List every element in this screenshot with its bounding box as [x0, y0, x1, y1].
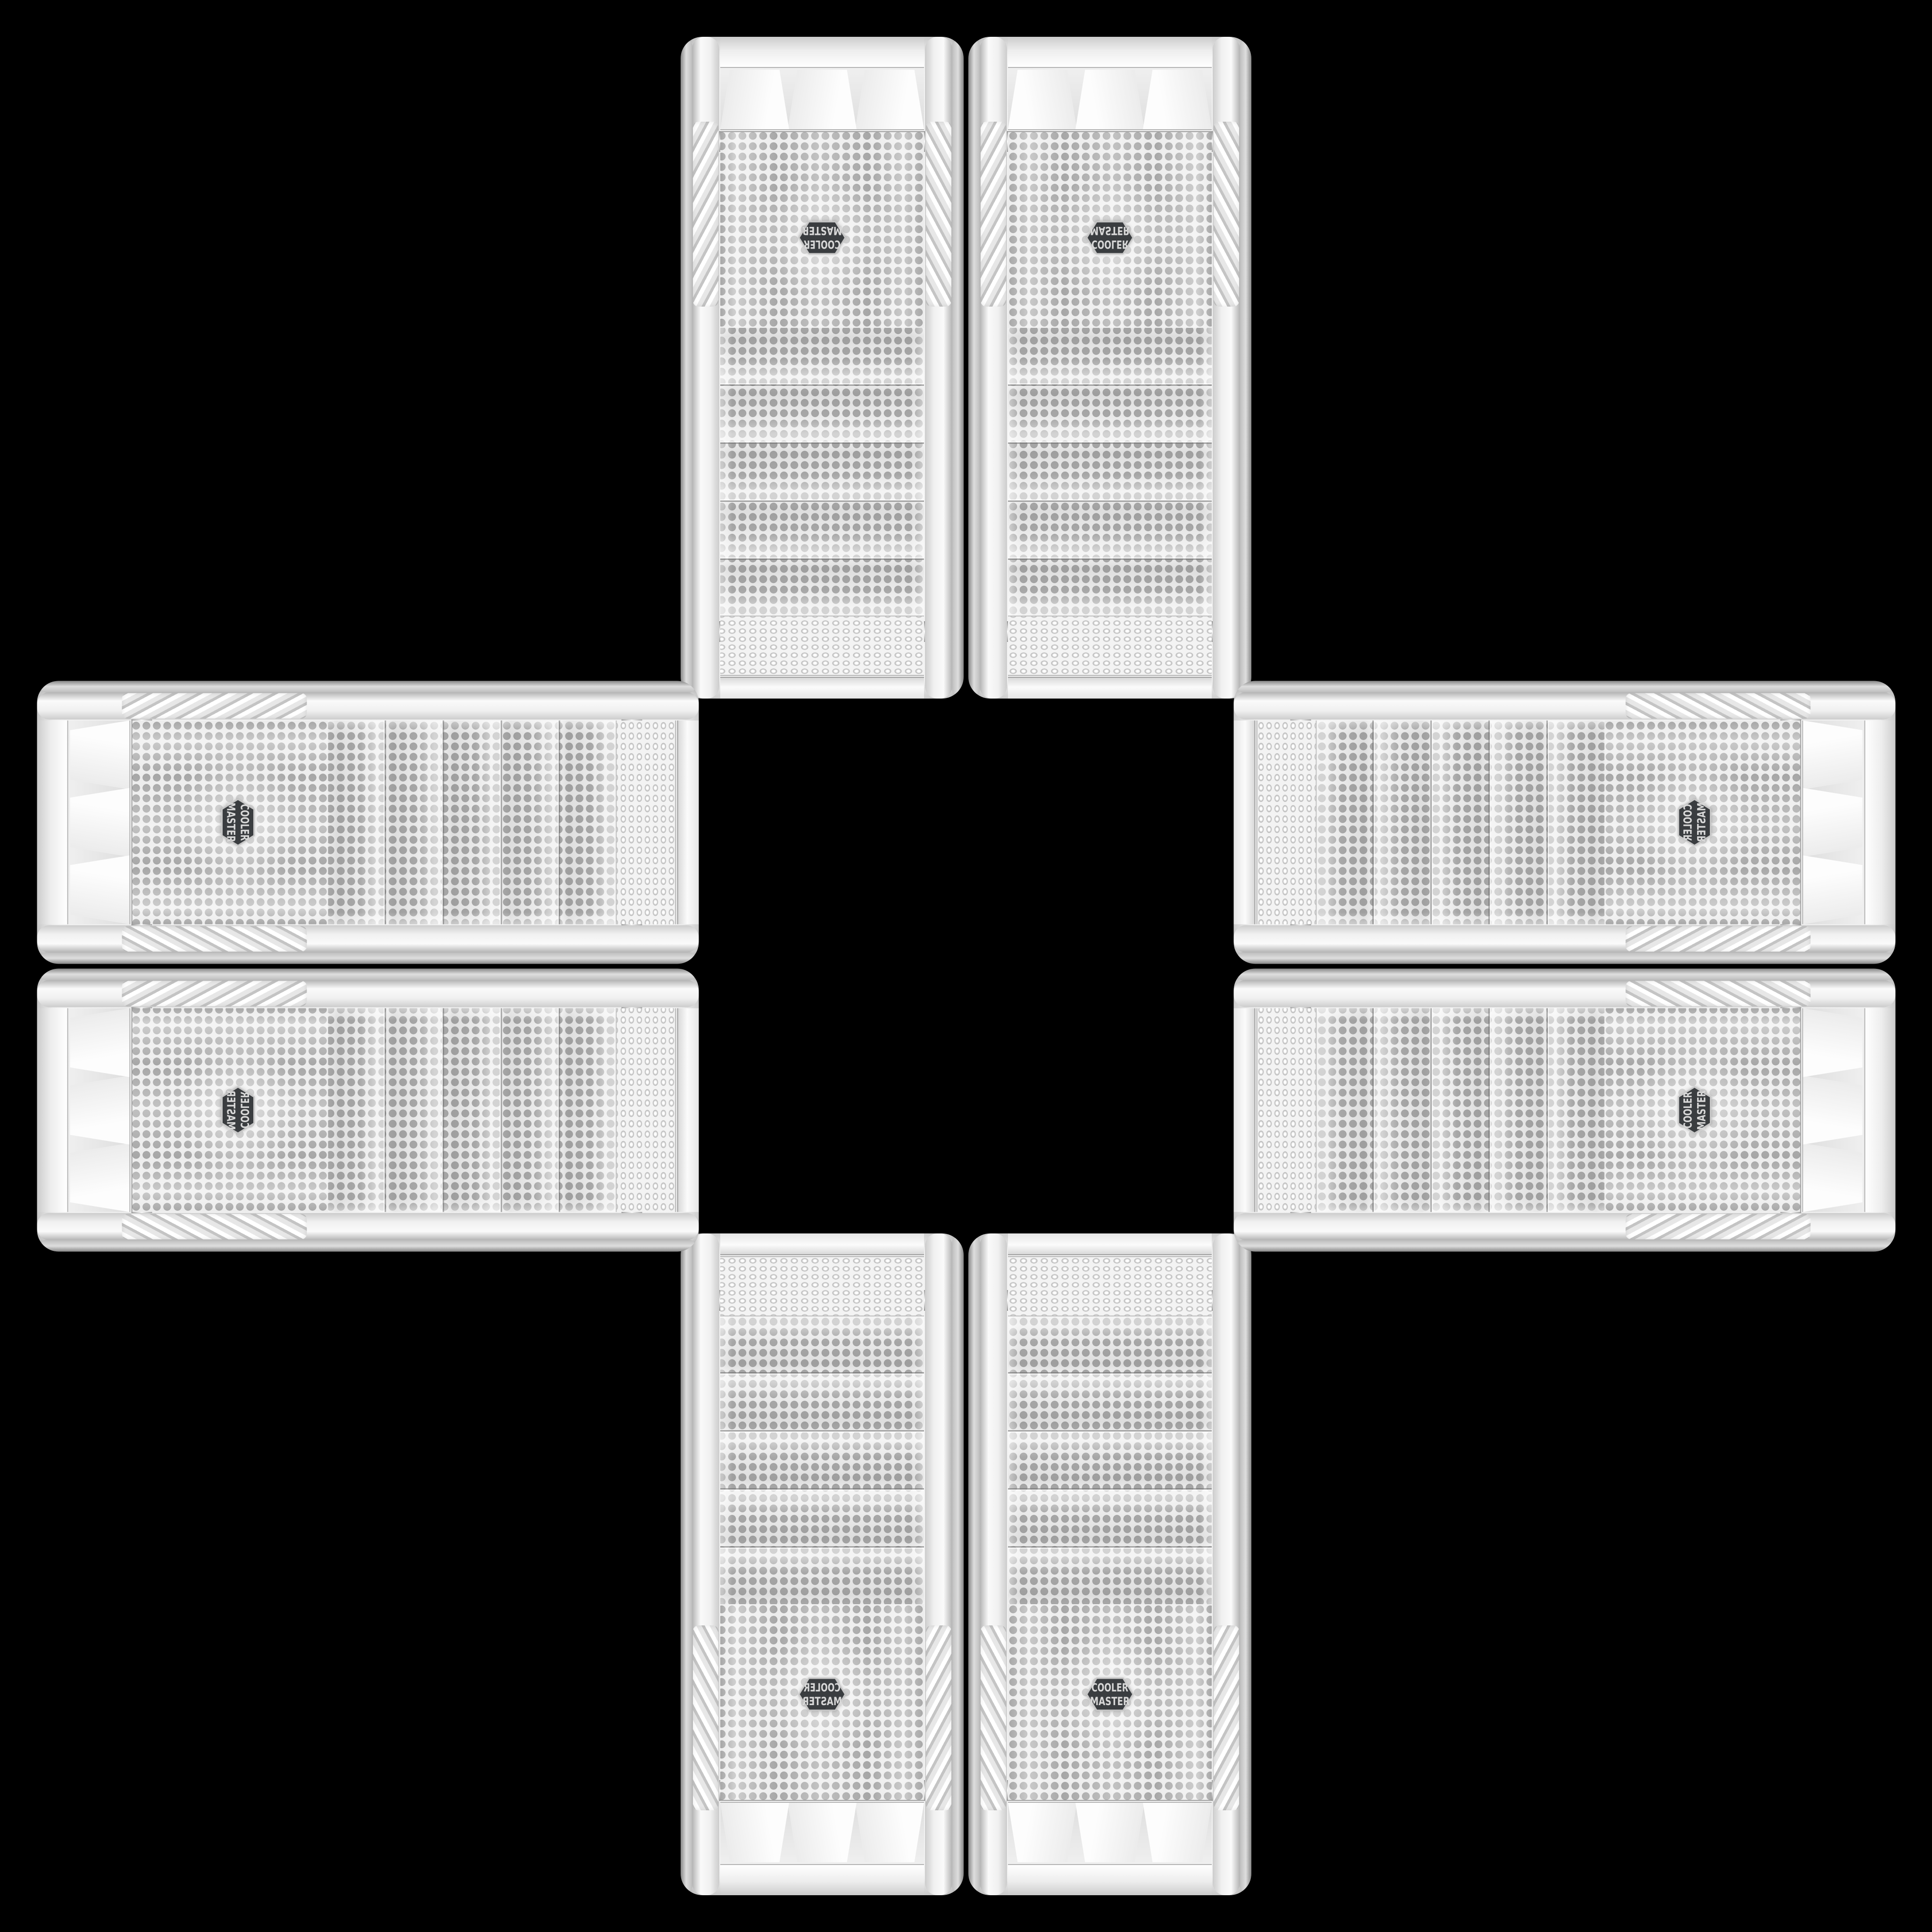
side-panel-edge-right [41, 952, 695, 964]
side-rail-left [980, 1233, 1007, 1895]
cap-facet [70, 856, 130, 924]
cap-base [1865, 1008, 1896, 1212]
drive-bay-covers [1317, 1008, 1605, 1212]
cap-facet [720, 1803, 789, 1862]
side-panel-edge-left [952, 41, 963, 695]
grip-ridges [693, 1625, 718, 1810]
cap-facet [1803, 721, 1863, 790]
bottom-cap [1803, 1008, 1896, 1212]
cap-facet [855, 1803, 924, 1862]
scene: COOLER MASTER [0, 0, 1932, 1932]
side-panel-edge-right [681, 41, 692, 695]
drive-bay-covers [1008, 328, 1212, 616]
chrome-trim-top [675, 1008, 678, 1212]
side-rail-left [925, 1233, 952, 1895]
case-slot-left-top: COOLER MASTER [37, 681, 699, 964]
cap-facet-row [1008, 69, 1212, 129]
cooler-master-logo: COOLER MASTER [1085, 1676, 1134, 1713]
side-rail-right [692, 1233, 719, 1895]
drive-bay-covers [328, 721, 616, 924]
cap-facet [1008, 70, 1077, 129]
cap-facet-row [720, 69, 924, 129]
side-panel-edge-right [1240, 1237, 1251, 1891]
badge-text-master: MASTER [225, 803, 238, 842]
badge-text-master: MASTER [1090, 224, 1130, 237]
pc-case-front-panel: COOLER MASTER [37, 681, 699, 964]
pc-case-front-panel: COOLER MASTER [1234, 681, 1896, 964]
badge-text-cooler: COOLER [1091, 238, 1128, 251]
badge-text-master: MASTER [802, 1695, 842, 1708]
cap-facet [788, 70, 857, 129]
grip-ridges [1626, 981, 1811, 1007]
top-lip [1008, 678, 1212, 699]
grip-ridges [122, 1214, 307, 1240]
top-lip [720, 678, 924, 699]
cooler-master-badge-shape: COOLER MASTER [1676, 1086, 1713, 1135]
grip-ridges [981, 1625, 1006, 1810]
badge-text-cooler: COOLER [238, 1092, 251, 1129]
pc-case-front-panel: COOLER MASTER [37, 969, 699, 1252]
mesh-roll-edge [720, 616, 924, 675]
side-rail-right [1234, 980, 1896, 1008]
cap-base [720, 37, 924, 67]
cap-base [37, 721, 67, 924]
cooler-master-badge-shape: COOLER MASTER [798, 219, 847, 256]
side-panel-edge-right [681, 1237, 692, 1891]
top-lip [678, 1008, 699, 1212]
cooler-master-badge-shape: COOLER MASTER [220, 798, 257, 847]
cap-facet [70, 721, 130, 790]
side-panel-edge-left [969, 1237, 980, 1891]
cap-facet [70, 788, 130, 857]
grip-ridges [981, 122, 1006, 307]
side-panel-edge-left [1238, 1240, 1892, 1251]
grip-ridges [122, 693, 307, 719]
grip-ridges [122, 981, 307, 1007]
side-panel-edge-right [1238, 952, 1892, 964]
case-slot-right-bottom: COOLER MASTER [1234, 969, 1896, 1252]
chrome-trim-bottom [130, 721, 133, 924]
grip-ridges [1214, 1625, 1239, 1810]
cap-facet-row [1803, 1008, 1864, 1212]
cooler-master-logo: COOLER MASTER [220, 798, 257, 847]
badge-text-master: MASTER [1695, 803, 1708, 842]
cap-facet-row [1008, 1803, 1212, 1863]
cooler-master-logo: COOLER MASTER [798, 219, 847, 256]
bottom-cap [720, 37, 924, 129]
side-panel-edge-right [1238, 969, 1892, 981]
side-panel-edge-left [952, 1237, 963, 1891]
bottom-cap [720, 1803, 924, 1895]
case-slot-right-top: COOLER MASTER [1234, 681, 1896, 964]
top-lip [720, 1233, 924, 1254]
drive-bay-covers [328, 1008, 616, 1212]
top-lip [1234, 1008, 1255, 1212]
mesh-roll-edge [616, 1008, 675, 1212]
side-rail-left [980, 37, 1007, 699]
cooler-master-badge-shape: COOLER MASTER [220, 1086, 257, 1135]
bottom-cap [1008, 1803, 1212, 1895]
cap-facet [1803, 856, 1863, 924]
side-panel-edge-left [969, 41, 980, 695]
badge-text-master: MASTER [802, 224, 842, 237]
pc-case-front-panel: COOLER MASTER [968, 1233, 1251, 1895]
front-panel: COOLER MASTER [720, 37, 924, 699]
badge-text-master: MASTER [1090, 1695, 1130, 1708]
grip-ridges [1626, 1214, 1811, 1240]
grip-ridges [926, 1625, 951, 1810]
cap-facet-row [69, 1008, 130, 1212]
badge-text-master: MASTER [1695, 1091, 1708, 1130]
cap-facet [70, 1008, 130, 1077]
chrome-trim-bottom [720, 129, 924, 132]
side-rail-right [37, 925, 699, 953]
side-rail-left [1234, 692, 1896, 720]
pc-case-front-panel: COOLER MASTER [681, 1233, 964, 1895]
case-slot-bottom-right: COOLER MASTER [968, 1233, 1251, 1895]
badge-text-cooler: COOLER [238, 804, 251, 841]
grip-ridges [926, 122, 951, 307]
pc-case-front-panel: COOLER MASTER [1234, 969, 1896, 1252]
cap-facet [1803, 788, 1863, 857]
cap-facet [1143, 70, 1212, 129]
chrome-trim-bottom [130, 1008, 133, 1212]
front-panel: COOLER MASTER [37, 1008, 699, 1212]
cap-facet [1803, 1143, 1863, 1212]
front-panel: COOLER MASTER [1008, 1233, 1212, 1895]
side-panel-edge-right [41, 969, 695, 981]
grip-ridges [1626, 693, 1811, 719]
front-panel: COOLER MASTER [1008, 37, 1212, 699]
drive-bay-covers [1008, 1316, 1212, 1604]
cooler-master-badge-shape: COOLER MASTER [1085, 1676, 1134, 1713]
drive-bay-covers [720, 328, 924, 616]
case-slot-top-right: COOLER MASTER [968, 37, 1251, 699]
grip-ridges [1626, 926, 1811, 952]
top-lip [1008, 1233, 1212, 1254]
front-panel: COOLER MASTER [1234, 1008, 1896, 1212]
case-slot-top-left: COOLER MASTER [681, 37, 964, 699]
side-rail-right [1213, 37, 1240, 699]
chrome-trim-top [720, 675, 924, 678]
cooler-master-badge-shape: COOLER MASTER [1085, 219, 1134, 256]
mesh-roll-edge [1008, 1257, 1212, 1316]
mesh-roll-edge [616, 721, 675, 924]
bottom-cap [37, 721, 130, 924]
mesh-roll-edge [1257, 1008, 1317, 1212]
grip-ridges [693, 122, 718, 307]
front-panel: COOLER MASTER [37, 721, 699, 924]
cap-facet [720, 70, 789, 129]
grip-ridges [1214, 122, 1239, 307]
mesh-roll-edge [1257, 721, 1317, 924]
badge-text-cooler: COOLER [804, 1681, 841, 1694]
top-lip [1234, 721, 1255, 924]
case-slot-left-bottom: COOLER MASTER [37, 969, 699, 1252]
cap-base [720, 1865, 924, 1895]
side-rail-left [37, 1213, 699, 1241]
cooler-master-badge-shape: COOLER MASTER [1676, 798, 1713, 847]
badge-text-cooler: COOLER [804, 238, 841, 251]
cooler-master-badge-shape: COOLER MASTER [798, 1676, 847, 1713]
side-rail-left [925, 37, 952, 699]
cooler-master-logo: COOLER MASTER [1676, 1086, 1713, 1135]
front-panel: COOLER MASTER [720, 1233, 924, 1895]
cap-facet [788, 1803, 857, 1862]
chrome-trim-top [1008, 675, 1212, 678]
bottom-cap [1008, 37, 1212, 129]
badge-text-master: MASTER [225, 1091, 238, 1130]
side-rail-left [37, 692, 699, 720]
cap-base [1865, 721, 1896, 924]
cap-facet [1803, 1008, 1863, 1077]
bottom-cap [1803, 721, 1896, 924]
side-rail-right [1213, 1233, 1240, 1895]
bottom-cap [37, 1008, 130, 1212]
mesh-roll-edge [1008, 616, 1212, 675]
badge-text-cooler: COOLER [1682, 1092, 1695, 1129]
cap-facet [70, 1076, 130, 1145]
badge-text-cooler: COOLER [1091, 1681, 1128, 1694]
cap-facet [1008, 1803, 1077, 1862]
cap-base [37, 1008, 67, 1212]
front-panel: COOLER MASTER [1234, 721, 1896, 924]
side-panel-edge-left [41, 1240, 695, 1251]
cap-base [1008, 1865, 1212, 1895]
chrome-trim-bottom [1008, 129, 1212, 132]
side-panel-edge-left [41, 682, 695, 693]
top-lip [678, 721, 699, 924]
cooler-master-logo: COOLER MASTER [1085, 219, 1134, 256]
badge-text-cooler: COOLER [1682, 804, 1695, 841]
cap-facet [1143, 1803, 1212, 1862]
side-rail-right [692, 37, 719, 699]
drive-bay-covers [720, 1316, 924, 1604]
cap-base [1008, 37, 1212, 67]
cap-facet [70, 1143, 130, 1212]
side-rail-right [37, 980, 699, 1008]
chrome-trim-top [675, 721, 678, 924]
drive-bay-covers [1317, 721, 1605, 924]
grip-ridges [122, 926, 307, 952]
mesh-roll-edge [720, 1257, 924, 1316]
cap-facet [1075, 70, 1144, 129]
cap-facet-row [720, 1803, 924, 1863]
cap-facet [1803, 1076, 1863, 1145]
cap-facet [1075, 1803, 1144, 1862]
side-panel-edge-right [1240, 41, 1251, 695]
side-rail-left [1234, 1213, 1896, 1241]
cooler-master-logo: COOLER MASTER [798, 1676, 847, 1713]
cap-facet [855, 70, 924, 129]
cooler-master-logo: COOLER MASTER [220, 1086, 257, 1135]
cooler-master-logo: COOLER MASTER [1676, 798, 1713, 847]
side-rail-right [1234, 925, 1896, 953]
case-slot-bottom-left: COOLER MASTER [681, 1233, 964, 1895]
pc-case-front-panel: COOLER MASTER [681, 37, 964, 699]
cap-facet-row [69, 721, 130, 924]
cap-facet-row [1803, 721, 1864, 924]
side-panel-edge-left [1238, 682, 1892, 693]
pc-case-front-panel: COOLER MASTER [968, 37, 1251, 699]
